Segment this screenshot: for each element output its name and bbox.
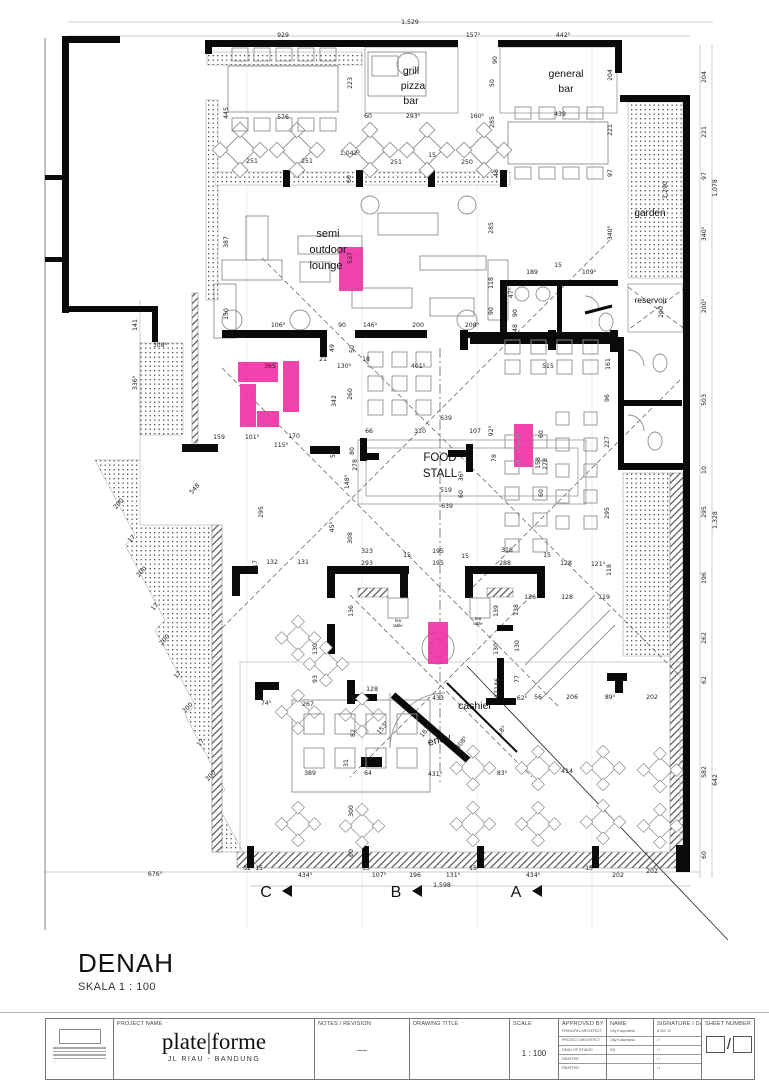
dim-label: 78 — [491, 454, 498, 462]
dim-label: 642 — [712, 774, 719, 786]
dim-label: 434⁵ — [298, 872, 313, 879]
dim-label: 537 — [347, 252, 354, 264]
approval-name: Oky Kuspriatna — [607, 1037, 653, 1046]
dim-label: 250 — [461, 159, 473, 166]
dim-label: 310 — [414, 428, 426, 435]
dim-label: 101⁵ — [245, 434, 260, 441]
dim-label: 293⁵ — [406, 113, 421, 120]
approval-date: / / — [654, 1037, 701, 1046]
dim-label: 288 — [499, 560, 511, 567]
floor-plan-sheet: 1,529929157⁵442⁵44557660293⁵160⁵43922390… — [0, 0, 769, 1084]
dim-label: 80 — [349, 447, 356, 455]
dim-label: 146⁵ — [363, 322, 378, 329]
dim-label: 18⁵ — [496, 724, 508, 737]
name-cell: NAME Oky KuspriatnaOky KuspriatnaDG- — [606, 1019, 653, 1079]
sheet-number-cell: SHEET NUMBER / — [701, 1019, 756, 1079]
dim-label: 60 — [364, 113, 372, 120]
dim-label: 221 — [607, 124, 614, 136]
dim-label: 44 — [501, 322, 508, 330]
approval-role: DRAFTER — [559, 1064, 606, 1073]
dim-label: 433 — [432, 695, 444, 702]
dim-label: 639 — [441, 503, 453, 510]
dim-label: 121⁵ — [591, 561, 606, 568]
room-label: FOOD — [423, 452, 456, 464]
approval-date: / / — [654, 1064, 701, 1073]
dim-label: 83⁵ — [497, 770, 508, 777]
dim-label: 160⁵ — [470, 113, 485, 120]
dim-label: 141 — [132, 319, 139, 331]
dim-label: 18 — [362, 356, 370, 363]
room-label: cashier — [458, 700, 492, 712]
dim-label: 15 — [554, 262, 562, 269]
dim-label: 285 — [488, 222, 495, 234]
dim-label: 90 — [512, 309, 519, 317]
dim-label: 60 — [701, 851, 708, 859]
approval-name: - — [607, 1064, 653, 1073]
dim-label: 50 — [349, 345, 356, 353]
dim-label: 128 — [560, 560, 572, 567]
dim-label: 295 — [258, 506, 265, 518]
dim-label: 1,328 — [712, 511, 719, 529]
dim-label: 48 — [512, 324, 519, 332]
project-name-cell: PROJECT NAME plate|forme JL RIAU - BANDU… — [113, 1019, 314, 1079]
dim-label: 90 — [492, 56, 499, 64]
dim-label: 323 — [361, 548, 373, 555]
dim-label: 340⁵ — [607, 225, 614, 240]
approval-role: DRAFTER — [559, 1055, 606, 1064]
dim-label: 262 — [701, 632, 708, 644]
dim-label: 1,529 — [401, 19, 419, 26]
room-label: garden — [634, 208, 665, 219]
dim-label: 52 — [330, 450, 337, 458]
dim-label: 60 — [346, 175, 353, 183]
section-marker-arrow-icon — [282, 885, 292, 897]
dim-label: 146 — [494, 678, 501, 690]
dim-label: 336⁵ — [132, 375, 139, 390]
dim-label: 208⁵ — [465, 322, 480, 329]
dim-label: 442⁵ — [556, 32, 571, 39]
dim-label: 285 — [489, 116, 496, 128]
title-block: PROJECT NAME plate|forme JL RIAU - BANDU… — [45, 1018, 755, 1080]
approval-name: DG — [607, 1046, 653, 1055]
dim-label: 308⁵ — [153, 342, 168, 349]
sheet-divider — [0, 1012, 769, 1013]
dim-label: 82 — [350, 729, 357, 737]
dim-label: 15 — [543, 552, 551, 559]
dim-label: 308 — [347, 532, 354, 544]
dim-label: 47⁵ — [508, 287, 515, 298]
notes-value: — — [318, 1045, 406, 1056]
room-label: lounge — [309, 260, 342, 272]
dim-label: 365 — [264, 363, 276, 370]
sheet-number-header: SHEET NUMBER — [705, 1021, 753, 1027]
dim-label: 66 — [365, 428, 373, 435]
dim-label: 48 — [493, 169, 500, 177]
room-label: reservoir — [634, 295, 667, 305]
dim-label: 132 — [266, 559, 278, 566]
scale-header: SCALE — [513, 1021, 555, 1027]
dim-label: 150 — [223, 308, 230, 320]
dim-label: 139 — [493, 605, 500, 617]
dim-label: 227 — [604, 436, 611, 448]
dim-label: 300 — [348, 805, 355, 817]
dim-label: 60 — [458, 490, 465, 498]
dim-label: 159 — [213, 434, 225, 441]
project-name-header: PROJECT NAME — [117, 1021, 311, 1027]
dim-label: 90 — [338, 322, 346, 329]
dim-label: 389 — [304, 770, 316, 777]
firm-location: JL RIAU - BANDUNG — [117, 1056, 311, 1063]
dim-label: 74⁵ — [261, 700, 272, 707]
dim-label: 148⁵ — [344, 474, 351, 489]
highlight-marker[interactable] — [257, 411, 279, 427]
room-label: pizza — [401, 80, 426, 92]
dim-label: 204 — [607, 69, 614, 81]
dim-label: 196 — [409, 872, 421, 879]
dim-label: 128 — [561, 594, 573, 601]
dim-label: 60 — [348, 849, 355, 857]
dim-label: 200⁵ — [701, 298, 708, 313]
dim-label: 206 — [566, 694, 578, 701]
dim-label: 45⁵ — [329, 521, 336, 532]
dim-label: 445 — [223, 107, 230, 119]
approval-name — [607, 1055, 653, 1064]
dim-label: 639 — [440, 415, 452, 422]
firm-address-lines — [49, 1047, 110, 1059]
section-marker-letter: B — [391, 884, 402, 901]
dim-label: 15 — [403, 552, 411, 559]
dim-label: 196 — [701, 572, 708, 584]
notes-revision-cell: NOTES / REVISION — — [314, 1019, 409, 1079]
dim-label: 130 — [493, 643, 500, 655]
dim-label: 15 — [428, 152, 436, 159]
room-label: bar — [558, 83, 574, 95]
dim-label: 439 — [554, 111, 566, 118]
dim-label: 31 — [343, 759, 350, 767]
dim-label: 136 — [348, 605, 355, 617]
dim-label: 1,290 — [662, 181, 669, 199]
dim-label: 387 — [223, 236, 230, 248]
highlight-marker[interactable] — [283, 361, 299, 412]
dim-label: 340⁵ — [701, 226, 708, 241]
dim-label: 119 — [598, 594, 610, 601]
dim-label: 60 — [538, 489, 545, 497]
sheet-number-box-right — [733, 1036, 752, 1053]
dim-label: 77 — [514, 675, 521, 683]
dim-label: 278 — [352, 459, 359, 471]
dim-label: 130⁵ — [337, 363, 352, 370]
section-marker-arrow-icon — [412, 885, 422, 897]
approval-date: / / — [654, 1046, 701, 1055]
dim-label: 251 — [301, 158, 313, 165]
notes-header: NOTES / REVISION — [318, 1021, 406, 1027]
dim-label: 414 — [561, 768, 573, 775]
dim-label: 15 — [585, 865, 593, 872]
dim-label: 60 — [538, 430, 545, 438]
dim-label: 1,598 — [433, 882, 451, 889]
approved-by-header: APPROVED BY — [562, 1021, 603, 1027]
dim-label: 576 — [277, 114, 289, 121]
dim-label: 200 — [412, 322, 424, 329]
dim-label: 15 — [362, 865, 370, 872]
dim-label: 170 — [288, 433, 300, 440]
approval-name: Oky Kuspriatna — [607, 1028, 653, 1037]
dim-label: 548 — [188, 482, 201, 496]
dim-label: 1,042⁵ — [340, 150, 361, 157]
dimension-lines — [45, 22, 713, 930]
dim-label: 62⁵ — [517, 695, 528, 702]
approval-date: / / — [654, 1055, 701, 1064]
dim-label: 93 — [312, 675, 319, 683]
dim-label: 36⁵ — [458, 470, 465, 481]
room-label: table — [473, 621, 483, 626]
dim-label: 15 — [461, 553, 469, 560]
dim-label: 10 — [701, 466, 708, 474]
highlight-marker[interactable] — [514, 424, 533, 467]
dim-label: 130 — [514, 640, 521, 652]
dim-label: 260 — [347, 388, 354, 400]
dim-label: 15 — [469, 865, 477, 872]
signature-header: SIGNATURE / DATE — [657, 1021, 698, 1027]
drawing-scale: SKALA 1 : 100 — [78, 981, 174, 993]
dim-label: 161 — [605, 358, 612, 370]
dim-label: 401⁵ — [411, 363, 426, 370]
dim-label: 64 — [364, 770, 372, 777]
dim-label: 49 — [329, 344, 336, 352]
dim-label: 158 — [535, 457, 542, 469]
room-label: bar — [403, 95, 419, 107]
dim-label: 21 — [319, 356, 327, 363]
approval-role: PROJECT ARCHITECT — [559, 1037, 606, 1046]
dim-label: 130 — [312, 643, 319, 655]
sheet-number-boxes: / — [705, 1036, 753, 1053]
dim-label: 96 — [604, 394, 611, 402]
dim-label: 136 — [524, 594, 536, 601]
dim-label: 1,078 — [712, 179, 719, 197]
dim-label: 37 — [494, 690, 501, 698]
dim-label: 929 — [277, 32, 289, 39]
dim-label: 107⁵ — [372, 872, 387, 879]
sheet-number-box-left — [706, 1036, 725, 1053]
dim-label: 251 — [246, 158, 258, 165]
floor-plan-drawing: 1,529929157⁵442⁵44557660293⁵160⁵43922390… — [0, 0, 769, 1010]
dim-label: 318 — [501, 547, 513, 554]
signature-date-cell: SIGNATURE / DATE 8 /02/ 10/ // // // / — [653, 1019, 701, 1079]
dim-label: 107 — [469, 428, 481, 435]
dim-label: 115⁵ — [274, 442, 289, 449]
firm-logo-cell — [46, 1019, 113, 1079]
furniture-layer — [214, 52, 667, 792]
dim-label: 204 — [701, 71, 708, 83]
dim-label: 32 — [243, 865, 251, 872]
room-label: semi — [316, 228, 339, 240]
room-label: STALL — [423, 468, 458, 480]
section-marker-letter: C — [260, 884, 272, 901]
firm-name: plate|forme — [117, 1029, 311, 1055]
dim-label: 189 — [526, 269, 538, 276]
dim-label: 118 — [606, 564, 613, 576]
approval-role: HEAD OF STUDIO — [559, 1046, 606, 1055]
drawing-title-header: DRAWING TITLE — [413, 1021, 506, 1027]
drawing-title-cell: DRAWING TITLE — [409, 1019, 509, 1079]
dim-label: 295 — [604, 507, 611, 519]
dim-label: 202 — [646, 694, 658, 701]
approval-date: 8 /02/ 10 — [654, 1028, 701, 1037]
dim-label: 97 — [607, 169, 614, 177]
dim-label: 278 — [542, 458, 549, 470]
dim-label: 109⁵ — [582, 269, 597, 276]
dim-label: 195 — [432, 548, 444, 555]
dim-label: 308⁵ — [455, 735, 470, 751]
dim-label: 342 — [331, 395, 338, 407]
dim-label: 106⁵ — [271, 322, 286, 329]
dim-label: 92⁵ — [488, 425, 495, 436]
dim-label: 89⁵ — [605, 694, 616, 701]
dim-label: 157⁵ — [466, 32, 481, 39]
approval-role: PRINCIPAL ARCHITECT — [559, 1028, 606, 1037]
drawing-title-block: DENAH SKALA 1 : 100 — [78, 948, 174, 993]
dim-label: 676⁵ — [148, 871, 163, 878]
dim-label: 223 — [347, 77, 354, 89]
dim-label: 431⁵ — [428, 771, 443, 778]
dim-label: 221 — [701, 126, 708, 138]
dim-label: 50 — [489, 79, 496, 87]
dim-label: 202 — [612, 872, 624, 879]
highlight-marker[interactable] — [240, 384, 256, 427]
dim-label: 97 — [701, 172, 708, 180]
dim-label: 200 — [658, 306, 665, 318]
room-label: general — [548, 68, 583, 80]
dim-label: 62 — [701, 676, 708, 684]
dim-label: 582 — [701, 766, 708, 778]
firm-logo — [59, 1029, 101, 1044]
section-marker-letter: A — [511, 884, 522, 901]
sheet-number-slash: / — [727, 1036, 731, 1053]
dim-label: 90 — [488, 307, 495, 315]
highlight-marker[interactable] — [428, 622, 448, 664]
dim-label: 131⁵ — [446, 872, 461, 879]
dim-label: 117 — [252, 560, 259, 572]
dim-label: 515 — [542, 363, 554, 370]
scale-cell: SCALE 1 : 100 — [509, 1019, 558, 1079]
scale-value: 1 : 100 — [513, 1049, 555, 1058]
section-marker-arrow-icon — [532, 885, 542, 897]
dim-label: 15 — [255, 865, 263, 872]
dim-label: 128 — [366, 686, 378, 693]
room-label: outdoor — [309, 244, 347, 256]
room-label: grill — [403, 65, 419, 77]
dim-label: 503 — [701, 394, 708, 406]
name-header: NAME — [610, 1021, 650, 1027]
dim-label: 267 — [302, 701, 314, 708]
room-label: table — [393, 623, 403, 628]
approved-by-cell: APPROVED BY PRINCIPAL ARCHITECTPROJECT A… — [558, 1019, 606, 1079]
dim-label: 202 — [646, 868, 658, 875]
drawing-name: DENAH — [78, 948, 174, 979]
dim-label: 195 — [432, 560, 444, 567]
dim-label: 295 — [701, 506, 708, 518]
dim-label: 118 — [488, 277, 495, 289]
dim-label: 131 — [297, 559, 309, 566]
dim-label: 138 — [513, 604, 520, 616]
dim-label: 434⁵ — [526, 872, 541, 879]
dim-label: 251 — [390, 159, 402, 166]
dim-label: 56 — [534, 694, 542, 701]
dim-label: 519 — [440, 487, 452, 494]
section-marker-layer: CBA — [260, 884, 542, 901]
dim-label: 293 — [361, 560, 373, 567]
